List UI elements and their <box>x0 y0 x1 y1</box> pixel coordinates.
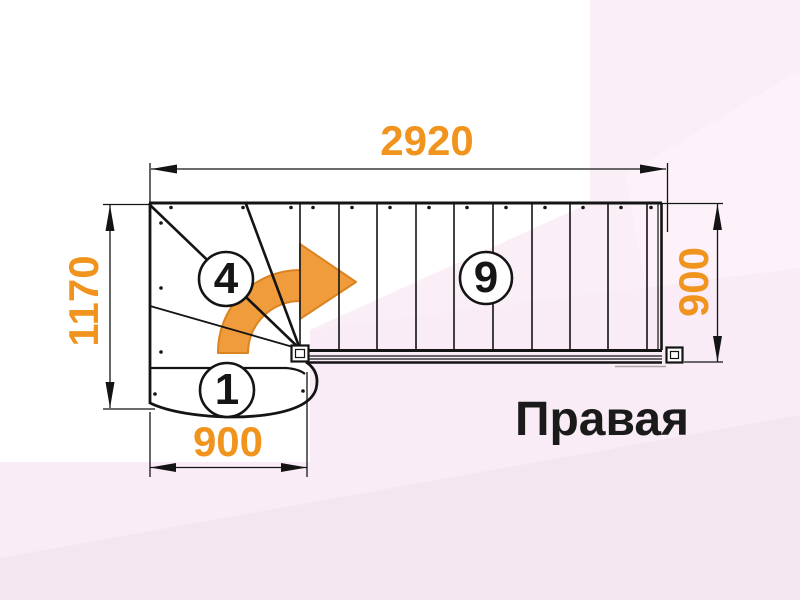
variant-title: Правая <box>452 394 752 446</box>
newel-posts <box>292 346 683 363</box>
dimension-right-label: 900 <box>671 182 717 382</box>
dimension-bottom-label: 900 <box>148 419 308 465</box>
dimension-left <box>103 205 155 410</box>
dimension-left-label: 1170 <box>61 201 107 401</box>
step-label-first: 1 <box>197 362 257 418</box>
dimension-top <box>150 163 668 232</box>
handrail-stringer <box>305 351 666 367</box>
staircase-plan-canvas: 2920 1170 900 900 4 1 9 Правая <box>0 0 800 600</box>
dimension-top-label: 2920 <box>327 118 527 164</box>
step-label-winder-last: 4 <box>196 251 256 307</box>
step-label-flight-last: 9 <box>456 250 516 306</box>
